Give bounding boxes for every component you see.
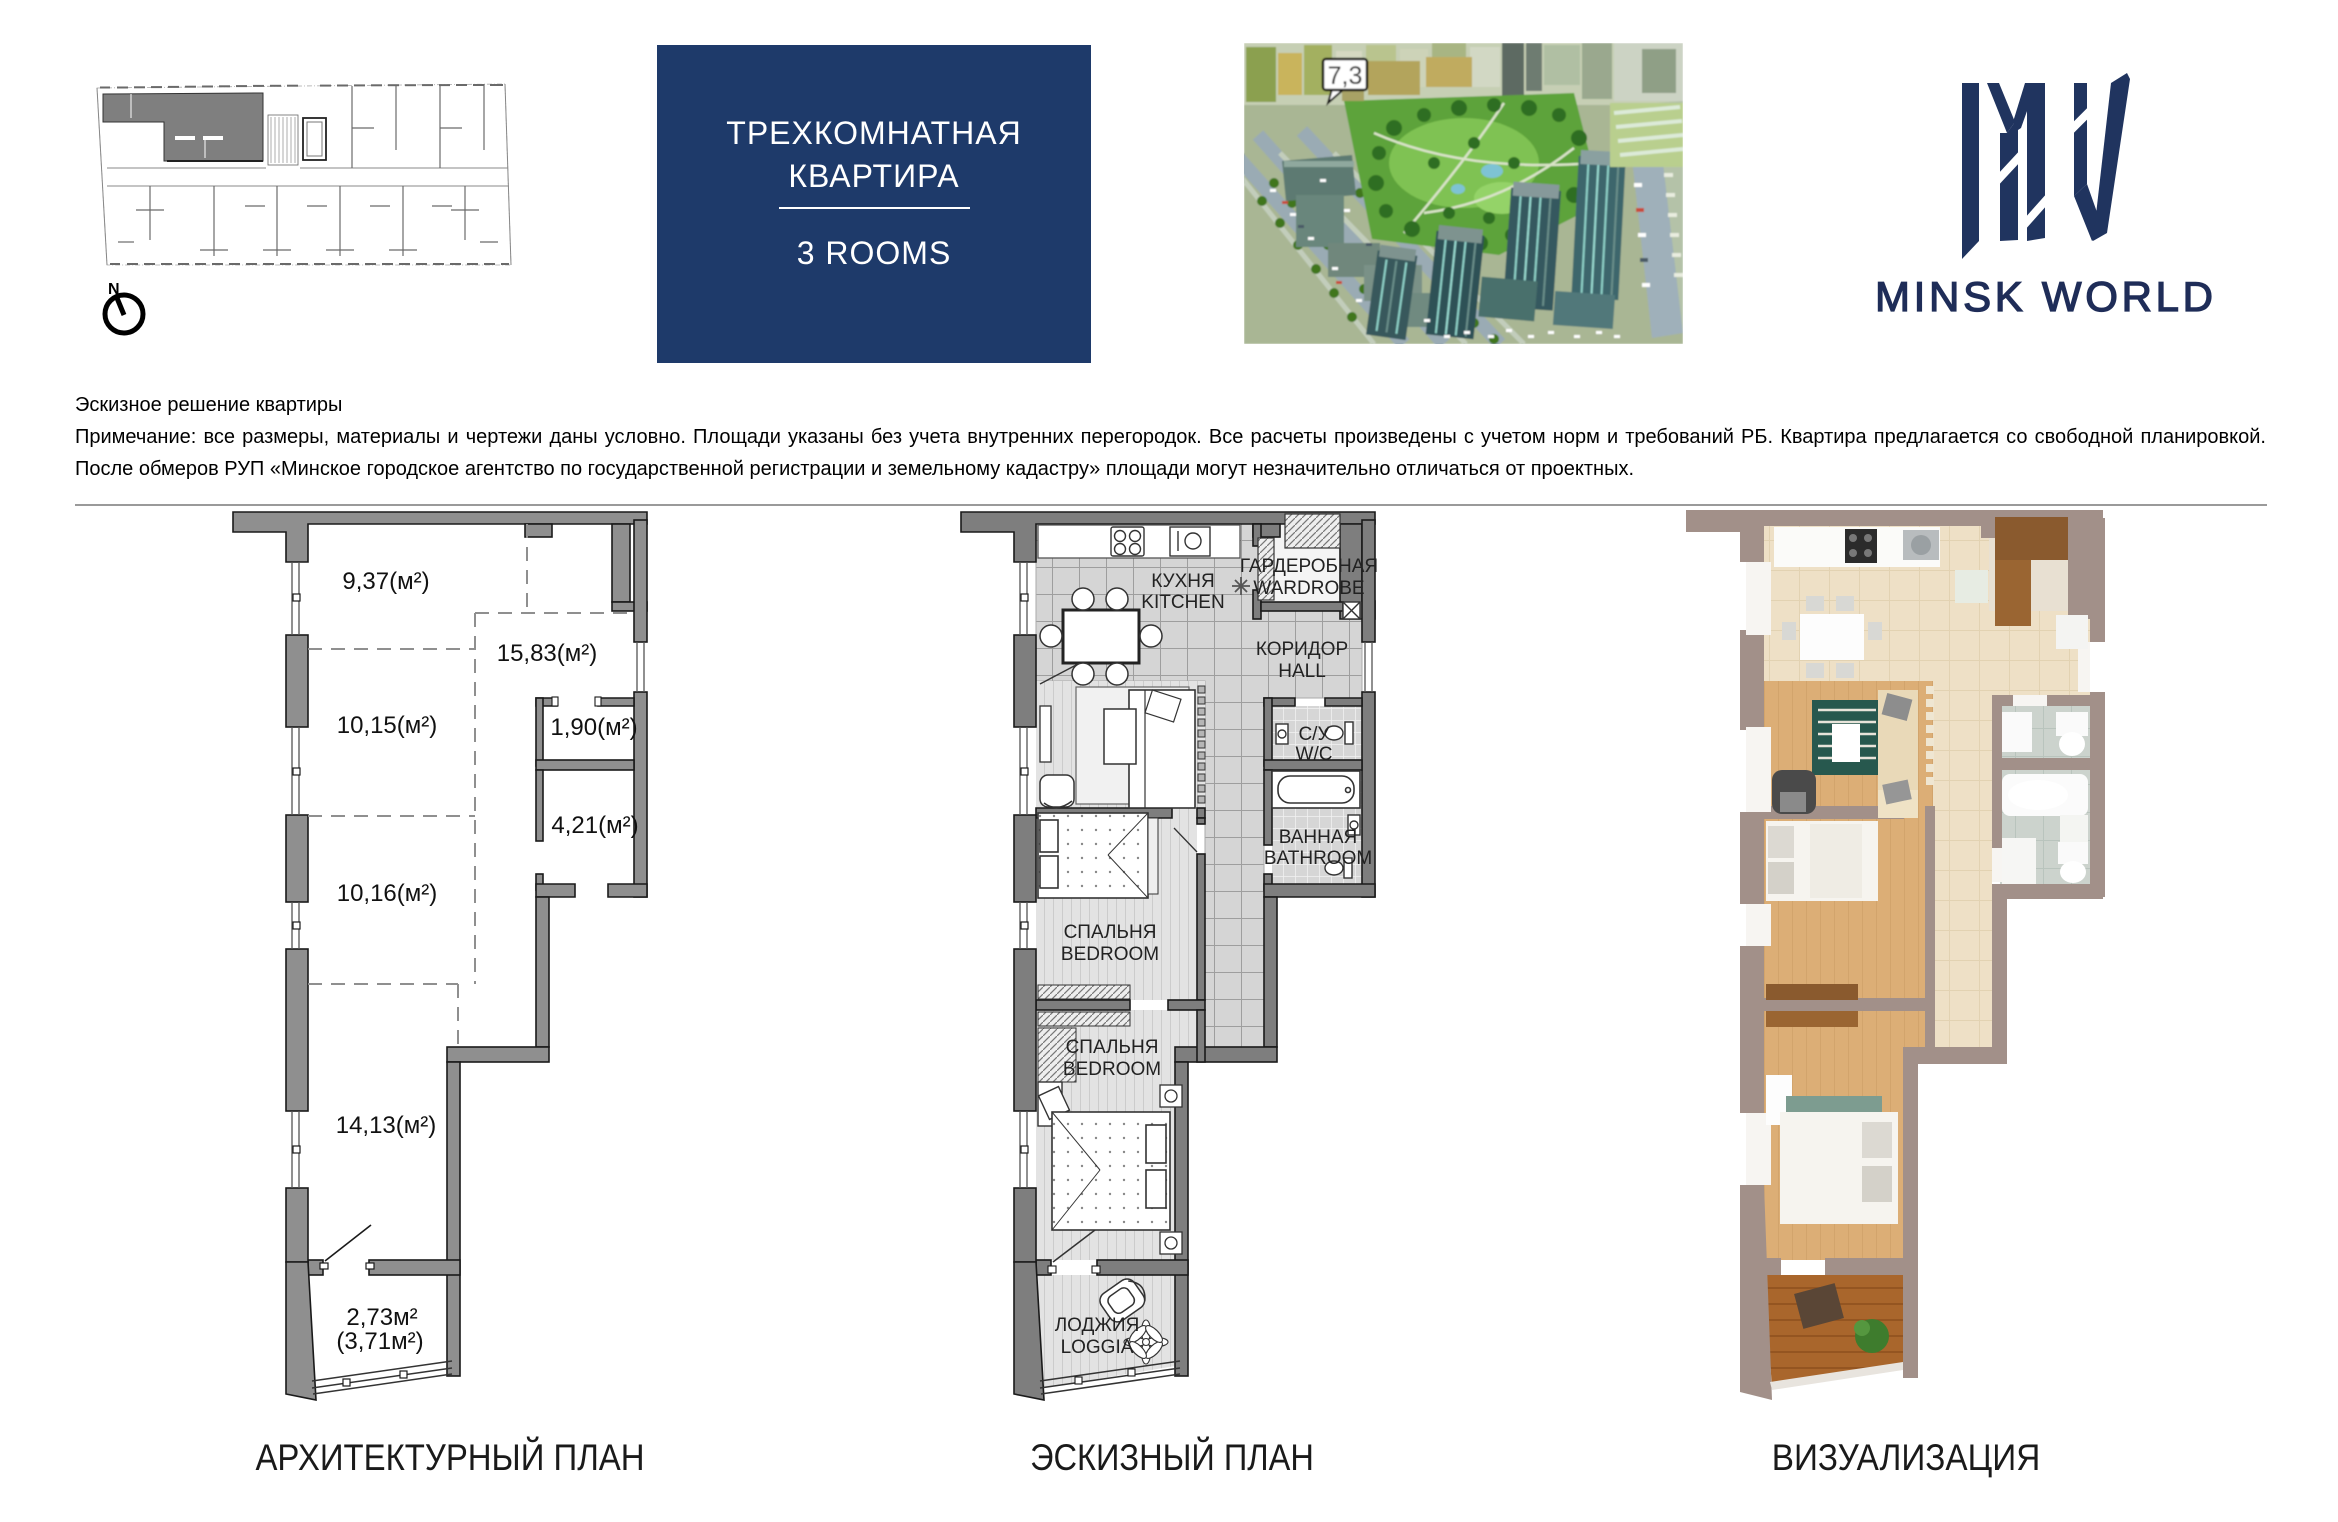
svg-text:ГАРДЕРОБНАЯ: ГАРДЕРОБНАЯ: [1240, 556, 1378, 577]
svg-text:КУХНЯ: КУХНЯ: [1151, 571, 1214, 592]
svg-text:1,90(м²): 1,90(м²): [550, 714, 637, 741]
svg-text:4,21(м²): 4,21(м²): [551, 812, 638, 839]
svg-text:2,73м²: 2,73м²: [346, 1304, 417, 1331]
svg-text:14,13(м²): 14,13(м²): [336, 1112, 437, 1139]
svg-text:10,15(м²): 10,15(м²): [337, 712, 438, 739]
svg-text:7,3: 7,3: [1328, 62, 1363, 90]
svg-text:N: N: [108, 281, 120, 298]
svg-text:HALL: HALL: [1278, 661, 1326, 682]
svg-text:15,83(м²): 15,83(м²): [497, 640, 598, 667]
svg-text:ЛОДЖИЯ: ЛОДЖИЯ: [1055, 1315, 1140, 1336]
svg-text:(3,71м²): (3,71м²): [336, 1328, 423, 1355]
svg-text:КОРИДОР: КОРИДОР: [1256, 639, 1348, 660]
svg-text:ВАННАЯ: ВАННАЯ: [1279, 827, 1358, 848]
svg-text:BEDROOM: BEDROOM: [1061, 944, 1159, 965]
svg-text:10,16(м²): 10,16(м²): [337, 880, 438, 907]
svg-text:СПАЛЬНЯ: СПАЛЬНЯ: [1066, 1037, 1159, 1058]
svg-text:KITCHEN: KITCHEN: [1141, 592, 1224, 613]
svg-text:С/У: С/У: [1298, 724, 1330, 745]
svg-text:W/C: W/C: [1296, 744, 1333, 765]
svg-text:BATHROOM: BATHROOM: [1264, 848, 1372, 869]
svg-text:LOGGIA: LOGGIA: [1061, 1337, 1134, 1358]
svg-text:9,37(м²): 9,37(м²): [342, 568, 429, 595]
svg-text:СПАЛЬНЯ: СПАЛЬНЯ: [1064, 922, 1157, 943]
svg-text:BEDROOM: BEDROOM: [1063, 1059, 1161, 1080]
svg-text:WARDROBE: WARDROBE: [1253, 578, 1364, 599]
